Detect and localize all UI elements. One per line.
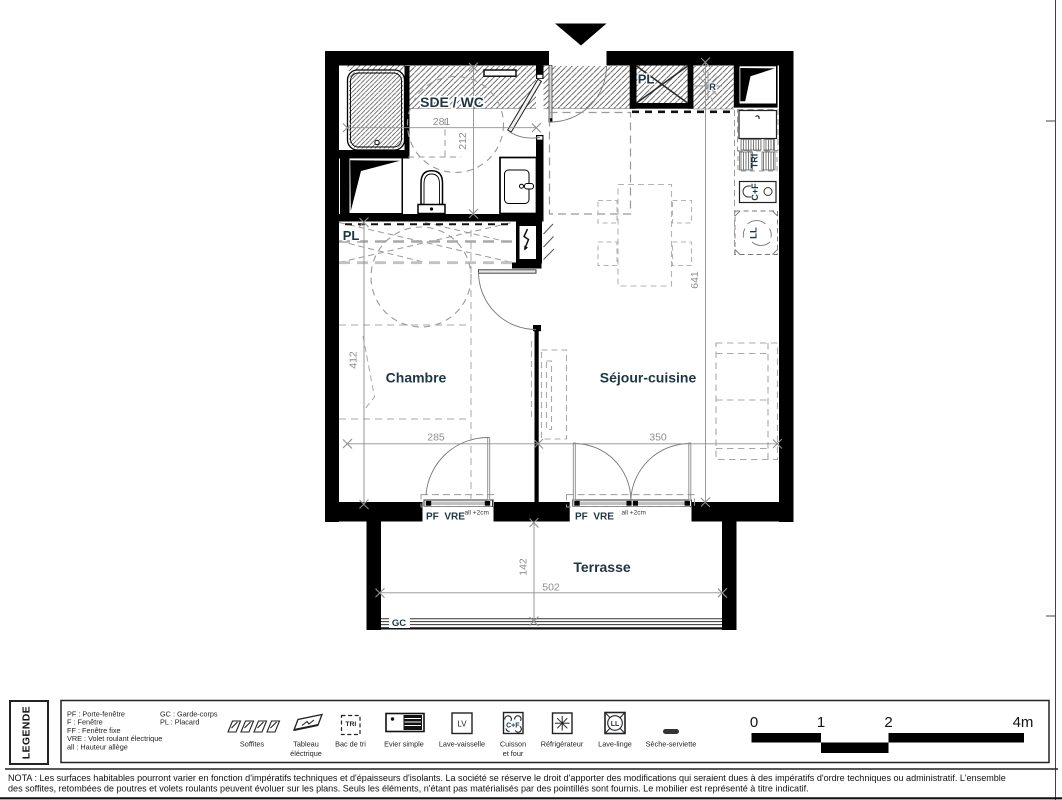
svg-text:PF VRE: PF VRE (426, 512, 465, 523)
svg-text:all +2cm: all +2cm (622, 510, 646, 517)
svg-text:4m: 4m (1013, 714, 1034, 731)
svg-text:Séjour-cuisine: Séjour-cuisine (600, 370, 697, 386)
svg-text:LL: LL (611, 721, 620, 728)
svg-text:TRI: TRI (345, 721, 356, 728)
svg-text:PL : Placard: PL : Placard (160, 718, 199, 727)
svg-text:212: 212 (457, 132, 469, 150)
svg-text:Réfrigérateur: Réfrigérateur (541, 740, 584, 749)
svg-text:412: 412 (348, 351, 360, 369)
svg-text:Cuisson: Cuisson (500, 740, 526, 749)
svg-text:Soffites: Soffites (240, 740, 265, 749)
svg-text:PF VRE: PF VRE (575, 512, 614, 523)
svg-text:PL: PL (343, 228, 360, 243)
svg-text:Evier simple: Evier simple (384, 740, 424, 749)
svg-text:R: R (709, 82, 716, 93)
svg-text:Bac de tri: Bac de tri (335, 740, 366, 749)
svg-text:LV: LV (457, 720, 467, 729)
svg-text:C+F: C+F (750, 183, 760, 201)
svg-text:350: 350 (649, 432, 667, 444)
svg-text:142: 142 (518, 558, 530, 576)
svg-text:GC: GC (392, 618, 406, 629)
svg-text:285: 285 (427, 432, 445, 444)
svg-text:Chambre: Chambre (386, 370, 447, 386)
svg-text:C+F: C+F (506, 723, 520, 730)
svg-text:Lave-vaisselle: Lave-vaisselle (439, 740, 485, 749)
svg-text:LEGENDE: LEGENDE (22, 706, 33, 759)
svg-text:Terrasse: Terrasse (573, 559, 631, 575)
svg-text:des soffites, retombées de pou: des soffites, retombées de poutres et vo… (8, 784, 809, 794)
svg-text:281: 281 (433, 116, 451, 128)
svg-text:LL: LL (749, 227, 760, 239)
svg-text:TRI: TRI (750, 154, 760, 169)
svg-text:NOTA : Les surfaces habitables: NOTA : Les surfaces habitables pourront … (8, 773, 1006, 783)
svg-text:et four: et four (503, 749, 524, 758)
svg-text:Lave-linge: Lave-linge (598, 740, 632, 749)
svg-text:éléctrique: éléctrique (290, 749, 322, 758)
svg-text:all +2cm: all +2cm (465, 510, 489, 517)
svg-text:0: 0 (750, 714, 758, 731)
svg-text:1: 1 (817, 714, 825, 731)
svg-text:641: 641 (689, 271, 701, 289)
svg-text:PL: PL (638, 72, 655, 87)
svg-text:Tableau: Tableau (293, 740, 319, 749)
svg-text:all : Hauteur allège: all : Hauteur allège (67, 742, 128, 751)
svg-text:2: 2 (884, 714, 892, 731)
svg-text:SDE / WC: SDE / WC (420, 94, 484, 110)
svg-text:502: 502 (542, 582, 560, 594)
svg-text:Sèche-serviette: Sèche-serviette (646, 740, 697, 749)
